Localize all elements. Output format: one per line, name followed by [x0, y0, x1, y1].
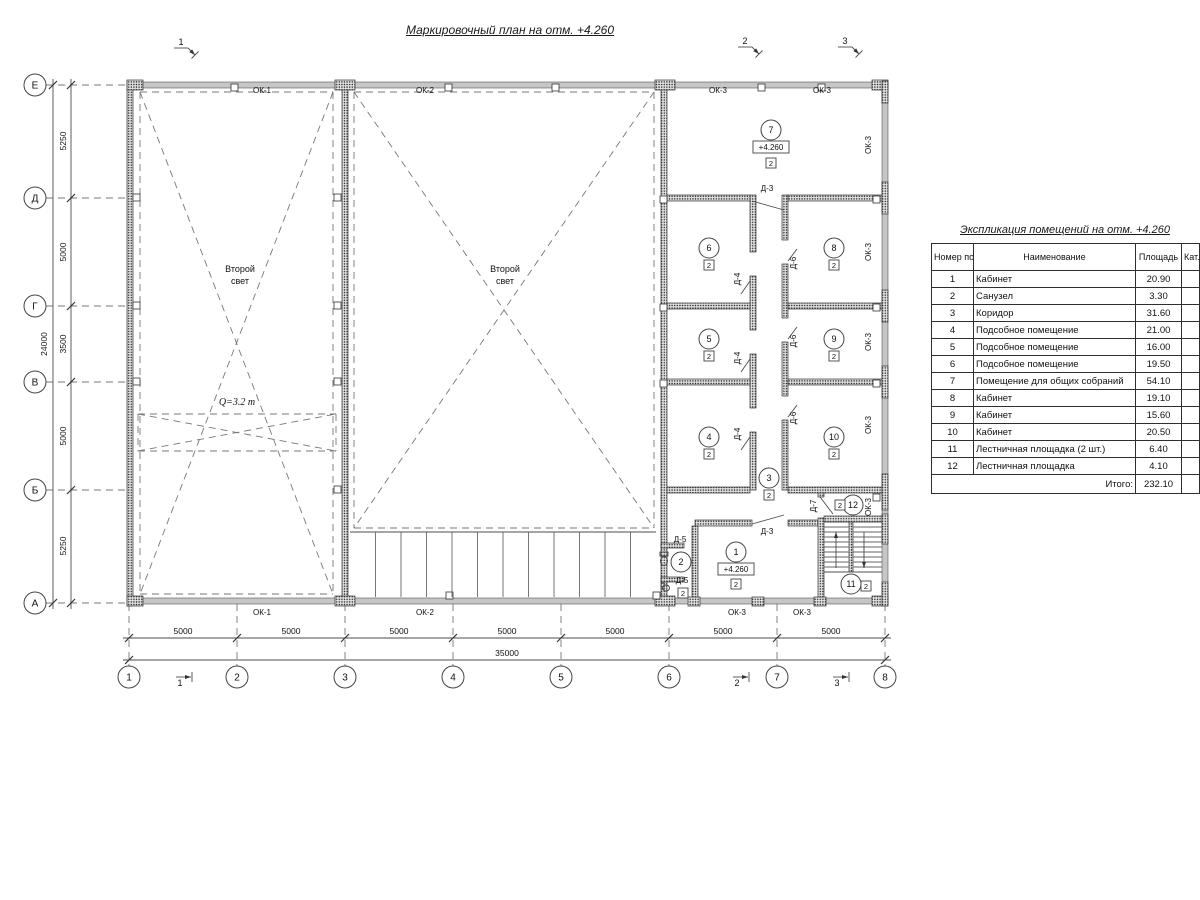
total-label: Итого: [932, 475, 1136, 494]
hall-label: Второй [225, 264, 255, 274]
door-label: Д-6 [789, 411, 798, 424]
section-marker-label: 1 [178, 37, 183, 47]
wall [788, 379, 882, 385]
schedule-row: 6Подсобное помещение19.50 [932, 356, 1200, 373]
room-number-label: 6 [706, 243, 711, 253]
wall [750, 354, 756, 408]
room-category [1182, 322, 1200, 339]
wall [661, 88, 667, 599]
window-label: ОК-3 [864, 497, 873, 516]
grid-marker-label: А [32, 599, 39, 610]
room-number: 4 [932, 322, 974, 339]
pier-marker [660, 196, 667, 203]
room-category [1182, 390, 1200, 407]
wall [342, 88, 348, 599]
window-label: ОК-3 [864, 332, 873, 351]
room-finish-label: 2 [769, 159, 773, 168]
grid-marker-label: 3 [342, 673, 348, 684]
wall [692, 526, 698, 599]
total-category-cell [1182, 475, 1200, 494]
schedule-total-row: Итого: 232.10 [932, 475, 1200, 494]
wall [818, 518, 824, 599]
window-label: ОК-1 [253, 86, 272, 95]
door-label: Д-3 [761, 184, 774, 193]
room-number: 11 [932, 441, 974, 458]
room-number: 7 [932, 373, 974, 390]
window-label: ОК-2 [416, 86, 435, 95]
schedule-row: 3Коридор31.60 [932, 305, 1200, 322]
room-finish-label: 2 [734, 580, 738, 589]
wall [667, 195, 750, 201]
wall [782, 264, 788, 318]
room-area: 31.60 [1136, 305, 1182, 322]
schedule-row: 2Санузел3.30 [932, 288, 1200, 305]
dimension-label: 5000 [174, 626, 193, 636]
drawing-sheet: Маркировочный план на отм. +4.260 500050… [0, 0, 1200, 900]
wall [750, 432, 756, 490]
dimension-label: 5250 [58, 536, 68, 555]
schedule-row: 4Подсобное помещение21.00 [932, 322, 1200, 339]
grid-marker-label: Д [32, 194, 39, 205]
window-label: ОК-1 [253, 608, 272, 617]
arrowhead [842, 675, 848, 679]
wall [750, 195, 756, 252]
door-label: Д-5 [674, 535, 687, 544]
pier-marker [231, 84, 238, 91]
dimension-label: 5000 [606, 626, 625, 636]
pier-marker [758, 84, 765, 91]
pier-marker [660, 304, 667, 311]
room-number: 8 [932, 390, 974, 407]
pier-marker [334, 486, 341, 493]
section-marker-label: 1 [177, 678, 182, 688]
grid-marker-label: 6 [666, 673, 672, 684]
dimension-label: 5000 [58, 426, 68, 445]
room-area: 6.40 [1136, 441, 1182, 458]
door-label: Д-6 [789, 334, 798, 347]
room-finish-label: 2 [767, 491, 771, 500]
room-category [1182, 373, 1200, 390]
room-number-label: 1 [733, 547, 738, 557]
grid-marker-label: Б [32, 486, 39, 497]
pier-marker [873, 380, 880, 387]
room-name: Подсобное помещение [974, 339, 1136, 356]
wall [788, 520, 818, 526]
grid-marker-label: 2 [234, 673, 240, 684]
room-number: 2 [932, 288, 974, 305]
wall [882, 474, 888, 510]
hall-label: свет [496, 276, 514, 286]
room-area: 21.00 [1136, 322, 1182, 339]
pier-marker [334, 378, 341, 385]
schedule-row: 8Кабинет19.10 [932, 390, 1200, 407]
wall [335, 80, 355, 90]
wall [782, 342, 788, 396]
room-number-label: 11 [846, 579, 855, 589]
room-finish-label: 2 [832, 450, 836, 459]
grid-marker-label: 4 [450, 673, 456, 684]
header-room-area: Площадь [1136, 244, 1182, 271]
room-number: 5 [932, 339, 974, 356]
grid-marker-label: 7 [774, 673, 780, 684]
wall [667, 379, 750, 385]
room-number-label: 7 [768, 125, 773, 135]
room-name: Подсобное помещение [974, 356, 1136, 373]
room-schedule: Экспликация помещений на отм. +4.260 Ном… [931, 224, 1199, 494]
level-mark-label: +4.260 [759, 143, 784, 152]
room-name: Помещение для общих собраний [974, 373, 1136, 390]
room-number-label: 4 [706, 432, 711, 442]
schedule-row: 10Кабинет20.50 [932, 424, 1200, 441]
wall [849, 522, 853, 572]
wall [882, 514, 888, 544]
level-mark-label: +4.260 [724, 565, 749, 574]
schedule-row: 12Лестничная площадка4.10 [932, 458, 1200, 475]
schedule-row: 5Подсобное помещение16.00 [932, 339, 1200, 356]
room-name: Подсобное помещение [974, 322, 1136, 339]
room-category [1182, 458, 1200, 475]
dimension-label: 5000 [282, 626, 301, 636]
room-area: 19.50 [1136, 356, 1182, 373]
room-area: 19.10 [1136, 390, 1182, 407]
section-marker-label: 2 [742, 36, 747, 46]
dimension-label: 3500 [58, 334, 68, 353]
room-number: 10 [932, 424, 974, 441]
wall [824, 516, 882, 522]
pier-marker [653, 592, 660, 599]
dimension-label: 5000 [822, 626, 841, 636]
schedule-header-row: Номер помещ. Наименование Площадь Кат. п… [932, 244, 1200, 271]
room-finish-label: 2 [681, 589, 685, 598]
header-room-category: Кат. пом. [1182, 244, 1200, 271]
window-label: ОК-3 [728, 608, 747, 617]
wall [127, 596, 143, 606]
window-label: ОК-3 [793, 608, 812, 617]
wall [788, 487, 882, 493]
room-finish-label: 2 [832, 352, 836, 361]
dimension-label: 5000 [390, 626, 409, 636]
wall [750, 276, 756, 330]
wall [127, 80, 143, 90]
wall [752, 597, 764, 606]
window-label: ОК-3 [864, 135, 873, 154]
wall [688, 597, 700, 606]
room-name: Лестничная площадка [974, 458, 1136, 475]
pier-marker [133, 194, 140, 201]
grid-marker-label: 5 [558, 673, 564, 684]
door-label: Д-7 [809, 499, 818, 512]
dimension-label: 5000 [714, 626, 733, 636]
thin-line [752, 201, 784, 210]
door-label: Д-3 [761, 527, 774, 536]
grid-marker-label: Г [32, 302, 38, 313]
thin-line [741, 281, 750, 294]
dimension-total-label: 35000 [495, 648, 519, 658]
wall [667, 487, 750, 493]
room-area: 20.50 [1136, 424, 1182, 441]
pier-marker [133, 378, 140, 385]
room-category [1182, 424, 1200, 441]
grid-marker-label: В [32, 378, 39, 389]
thin-line [820, 497, 833, 514]
room-category [1182, 339, 1200, 356]
grid-marker-label: 1 [126, 673, 132, 684]
wall [882, 182, 888, 214]
room-number-label: 2 [678, 557, 683, 567]
pier-marker [445, 84, 452, 91]
grid-marker-label: 8 [882, 673, 888, 684]
door-label: Д-4 [733, 351, 742, 364]
room-number-label: 3 [766, 473, 771, 483]
room-name: Кабинет [974, 424, 1136, 441]
room-area: 3.30 [1136, 288, 1182, 305]
room-finish-label: 2 [832, 261, 836, 270]
room-finish-label: 2 [707, 450, 711, 459]
door-label: Д-6 [789, 256, 798, 269]
room-category [1182, 356, 1200, 373]
arrowhead [742, 675, 748, 679]
room-number: 9 [932, 407, 974, 424]
window-label: ОК-3 [864, 242, 873, 261]
room-area: 20.90 [1136, 271, 1182, 288]
room-name: Лестничная площадка (2 шт.) [974, 441, 1136, 458]
dimension-label: 5000 [498, 626, 517, 636]
wall [814, 597, 826, 606]
room-finish-label: 2 [864, 582, 868, 591]
section-marker-label: 3 [842, 36, 847, 46]
pier-marker [133, 302, 140, 309]
schedule-row: 1Кабинет20.90 [932, 271, 1200, 288]
schedule-row: 9Кабинет15.60 [932, 407, 1200, 424]
room-number-label: 12 [848, 500, 858, 510]
door-label: Д-4 [733, 427, 742, 440]
schedule-title: Экспликация помещений на отм. +4.260 [931, 224, 1199, 236]
room-category [1182, 305, 1200, 322]
schedule-row: 11Лестничная площадка (2 шт.)6.40 [932, 441, 1200, 458]
section-marker-label: 2 [734, 678, 739, 688]
arrowhead [185, 675, 191, 679]
room-number: 1 [932, 271, 974, 288]
room-name: Кабинет [974, 407, 1136, 424]
room-name: Кабинет [974, 390, 1136, 407]
window-label: ОК-3 [709, 86, 728, 95]
room-number-label: 5 [706, 334, 711, 344]
room-name: Кабинет [974, 271, 1136, 288]
room-number: 6 [932, 356, 974, 373]
wall [882, 366, 888, 398]
pier-marker [873, 494, 880, 501]
wall [788, 303, 882, 309]
hall-label: свет [231, 276, 249, 286]
arrowhead [834, 532, 838, 538]
wall [655, 80, 675, 90]
room-category [1182, 441, 1200, 458]
room-name: Коридор [974, 305, 1136, 322]
room-number: 3 [932, 305, 974, 322]
door-label: Д-4 [733, 272, 742, 285]
wall [335, 596, 355, 606]
room-category [1182, 288, 1200, 305]
wall [818, 493, 824, 497]
wall [788, 195, 882, 201]
schedule-table: Номер помещ. Наименование Площадь Кат. п… [931, 243, 1200, 494]
window-label: ОК-3 [864, 415, 873, 434]
header-room-name: Наименование [974, 244, 1136, 271]
room-category [1182, 407, 1200, 424]
room-finish-label: 2 [707, 261, 711, 270]
room-area: 54.10 [1136, 373, 1182, 390]
pier-marker [873, 304, 880, 311]
schedule-row: 7Помещение для общих собраний54.10 [932, 373, 1200, 390]
pier-marker [552, 84, 559, 91]
pier-marker [334, 302, 341, 309]
room-finish-label: 2 [838, 501, 842, 510]
wall [882, 582, 888, 606]
dimension-total-label: 24000 [39, 332, 49, 356]
wall [127, 81, 133, 606]
room-number-label: 8 [831, 243, 836, 253]
pier-marker [334, 194, 341, 201]
room-finish-label: 2 [707, 352, 711, 361]
pier-marker [873, 196, 880, 203]
wall [695, 520, 752, 526]
total-value: 232.10 [1136, 475, 1182, 494]
thin-line [741, 359, 750, 372]
hall-label: Второй [490, 264, 520, 274]
room-area: 16.00 [1136, 339, 1182, 356]
room-name: Санузел [974, 288, 1136, 305]
grid-marker-label: Е [32, 81, 39, 92]
wall [782, 420, 788, 490]
thin-line [741, 437, 750, 450]
wall [667, 303, 750, 309]
dimension-label: 5000 [58, 242, 68, 261]
window-label: ОК-2 [416, 608, 435, 617]
room-category [1182, 271, 1200, 288]
header-room-number: Номер помещ. [932, 244, 974, 271]
door-label: Д-5 [676, 576, 689, 585]
thin-line [752, 515, 784, 524]
room-number-label: 10 [829, 432, 839, 442]
room-number: 12 [932, 458, 974, 475]
hall-label: Q=3.2 т [219, 397, 255, 408]
room-number-label: 9 [831, 334, 836, 344]
wall [882, 81, 888, 103]
wall [882, 290, 888, 322]
room-area: 4.10 [1136, 458, 1182, 475]
window-label: ОК-3 [813, 86, 832, 95]
dimension-label: 5250 [58, 131, 68, 150]
section-marker-label: 3 [834, 678, 839, 688]
pier-marker [660, 380, 667, 387]
room-area: 15.60 [1136, 407, 1182, 424]
wall [782, 195, 788, 240]
